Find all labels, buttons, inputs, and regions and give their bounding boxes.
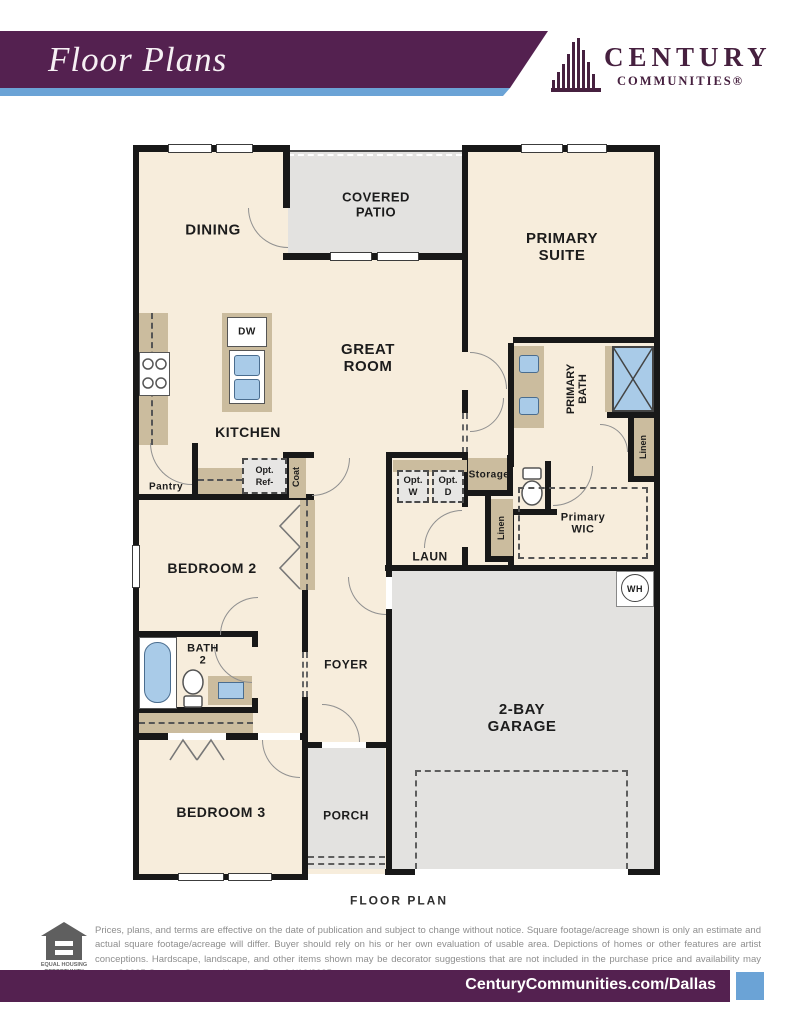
wall	[133, 145, 139, 880]
shower-edge	[605, 346, 612, 412]
bifold-door-icon	[276, 503, 302, 591]
window	[567, 144, 607, 153]
room-label-dining: DINING	[185, 223, 241, 240]
optional-refrigerator-box: Opt. Ref-	[242, 458, 287, 494]
wall	[302, 590, 308, 652]
room-label-laundry: LAUN	[412, 550, 447, 563]
page: Floor Plans CENTURY COMMUNITIES®	[0, 0, 791, 1024]
room-label-bedroom3: BEDROOM 3	[176, 805, 265, 821]
dishwasher-label: DW	[238, 326, 256, 337]
window	[216, 144, 253, 153]
sink-basin	[234, 355, 260, 376]
wall	[628, 476, 660, 482]
cased-opening	[302, 652, 308, 697]
window	[521, 144, 563, 153]
water-heater-label: WH	[627, 584, 643, 594]
window	[330, 252, 372, 261]
garage-entry-opening	[386, 577, 392, 609]
bathtub-icon	[144, 642, 171, 703]
wall	[485, 556, 513, 562]
sink-basin	[218, 682, 244, 699]
bedroom3-door-opening	[258, 733, 300, 740]
wall	[513, 337, 660, 343]
room-label-great-room: GREAT ROOM	[341, 342, 395, 376]
room-label-primary-suite: PRIMARY SUITE	[526, 231, 598, 265]
page-title: Floor Plans	[48, 40, 227, 80]
counter	[198, 468, 242, 494]
front-door-opening	[322, 742, 366, 748]
room-label-bath2: BATH 2	[187, 643, 219, 668]
wall	[462, 150, 468, 352]
room-label-pantry: Pantry	[149, 481, 183, 492]
wall	[283, 150, 290, 208]
counter-dashed-line	[198, 479, 242, 481]
window	[228, 873, 272, 881]
bedroom2-closet	[300, 500, 315, 590]
sink-basin	[519, 355, 539, 373]
sink-basin	[234, 379, 260, 400]
garage-door-dashed-outline	[415, 770, 628, 869]
optional-washer-box: Opt. W	[397, 470, 429, 503]
room-label-primary-wic: Primary WIC	[561, 512, 605, 537]
room-label-garage: 2-BAY GARAGE	[488, 702, 557, 736]
stove-icon	[139, 352, 170, 396]
bifold-door-icon	[168, 736, 226, 762]
wall	[252, 637, 258, 647]
room-label-porch: PORCH	[323, 809, 369, 822]
closet-rod-dashed-line	[306, 500, 308, 590]
wall	[302, 733, 308, 880]
room-label-primary-bath: PRIMARY BATH	[565, 364, 589, 414]
garage-door-opening	[415, 869, 628, 875]
wall	[654, 145, 660, 875]
optional-dryer-box: Opt. D	[432, 470, 464, 503]
bedroom3-closet	[139, 713, 253, 733]
room-label-covered-patio: COVERED PATIO	[342, 190, 410, 219]
patio-roof-dashed-line	[288, 154, 462, 156]
brand-subtitle: COMMUNITIES®	[617, 74, 744, 89]
sink-basin	[519, 397, 539, 415]
brand-name: CENTURY	[604, 42, 772, 73]
closet-rod-dashed-line	[139, 722, 253, 724]
window	[132, 545, 140, 588]
wall	[462, 390, 468, 414]
storage-label: Storage	[469, 469, 510, 480]
wall	[386, 452, 392, 577]
wall	[387, 452, 468, 458]
header-banner-accent	[0, 88, 510, 96]
century-communities-logo-icon	[551, 36, 601, 92]
cased-opening	[462, 413, 468, 453]
shower-icon	[612, 346, 654, 412]
window	[377, 252, 419, 261]
plan-caption: FLOOR PLAN	[350, 894, 448, 907]
linen-label: Linen	[639, 435, 649, 459]
room-label-foyer: FOYER	[324, 658, 368, 671]
accent-square	[736, 972, 764, 1000]
website-link[interactable]: CenturyCommunities.com/Dallas	[465, 976, 716, 994]
linen-label: Linen	[497, 516, 507, 540]
window	[168, 144, 212, 153]
wall	[283, 253, 468, 260]
room-label-kitchen: KITCHEN	[215, 425, 281, 441]
window	[178, 873, 224, 881]
room-label-bedroom2: BEDROOM 2	[167, 561, 256, 577]
toilet-icon	[180, 668, 206, 708]
porch-edge-dashed-line	[308, 856, 385, 865]
equal-housing-icon	[37, 922, 91, 960]
coat-closet-label: Coat	[292, 467, 302, 487]
